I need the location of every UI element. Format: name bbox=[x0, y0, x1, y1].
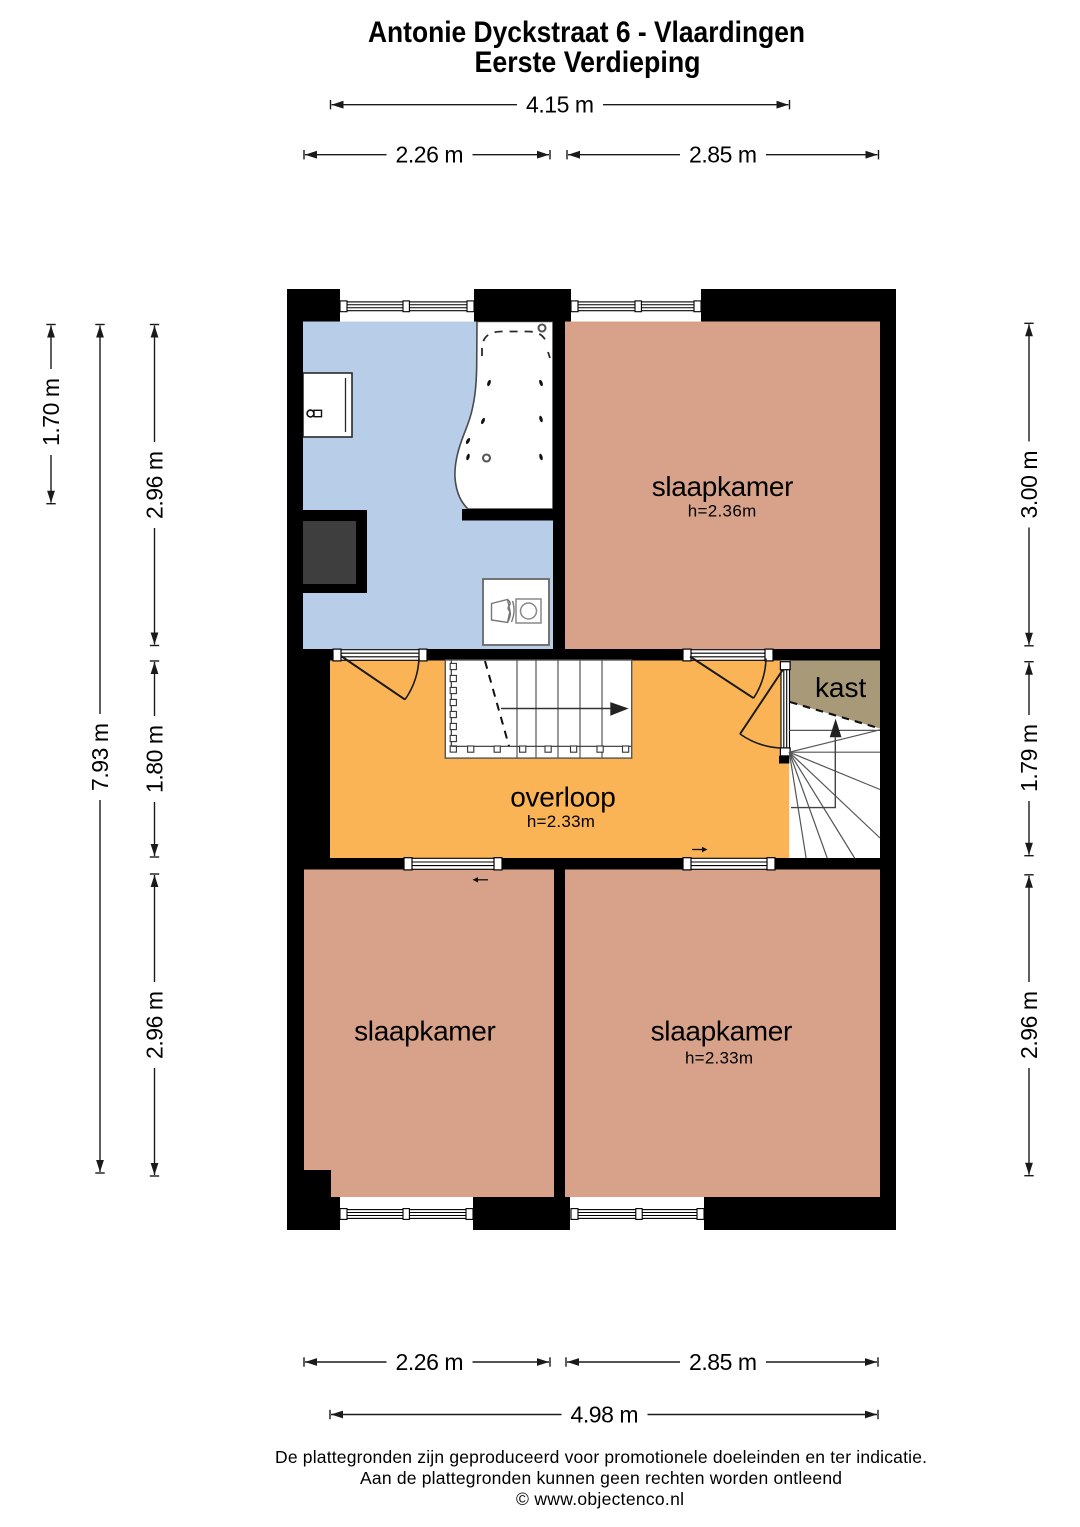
svg-text:slaapkamer: slaapkamer bbox=[354, 1016, 496, 1047]
svg-text:2.85 m: 2.85 m bbox=[689, 1349, 757, 1375]
svg-text:h=2.36m: h=2.36m bbox=[688, 502, 757, 521]
svg-text:© www.objectenco.nl: © www.objectenco.nl bbox=[516, 1489, 684, 1509]
svg-text:Antonie Dyckstraat 6 - Vlaardi: Antonie Dyckstraat 6 - Vlaardingen bbox=[368, 16, 805, 49]
svg-text:2.96 m: 2.96 m bbox=[142, 451, 168, 519]
svg-text:7.93 m: 7.93 m bbox=[87, 723, 113, 791]
svg-text:h=2.33m: h=2.33m bbox=[685, 1049, 753, 1068]
svg-text:2.96 m: 2.96 m bbox=[1016, 991, 1042, 1059]
svg-text:1.79 m: 1.79 m bbox=[1016, 724, 1042, 792]
svg-text:slaapkamer: slaapkamer bbox=[652, 471, 794, 502]
svg-text:2.26 m: 2.26 m bbox=[396, 1349, 464, 1375]
svg-text:2.96 m: 2.96 m bbox=[142, 991, 168, 1059]
svg-text:2.26 m: 2.26 m bbox=[396, 142, 464, 168]
svg-text:kast: kast bbox=[815, 672, 867, 703]
svg-text:1.80 m: 1.80 m bbox=[142, 725, 168, 793]
svg-text:4.15 m: 4.15 m bbox=[526, 92, 594, 118]
svg-text:4.98 m: 4.98 m bbox=[571, 1402, 639, 1428]
svg-text:overloop: overloop bbox=[510, 782, 616, 813]
svg-text:1.70 m: 1.70 m bbox=[38, 378, 64, 446]
svg-text:Aan de plattegronden kunnen ge: Aan de plattegronden kunnen geen rechten… bbox=[360, 1468, 842, 1488]
svg-text:h=2.33m: h=2.33m bbox=[527, 812, 595, 831]
svg-text:slaapkamer: slaapkamer bbox=[651, 1016, 793, 1047]
svg-text:2.85 m: 2.85 m bbox=[689, 142, 757, 168]
svg-text:De plattegronden zijn geproduc: De plattegronden zijn geproduceerd voor … bbox=[275, 1447, 927, 1467]
svg-text:Eerste Verdieping: Eerste Verdieping bbox=[475, 46, 701, 79]
svg-text:3.00 m: 3.00 m bbox=[1016, 451, 1042, 519]
